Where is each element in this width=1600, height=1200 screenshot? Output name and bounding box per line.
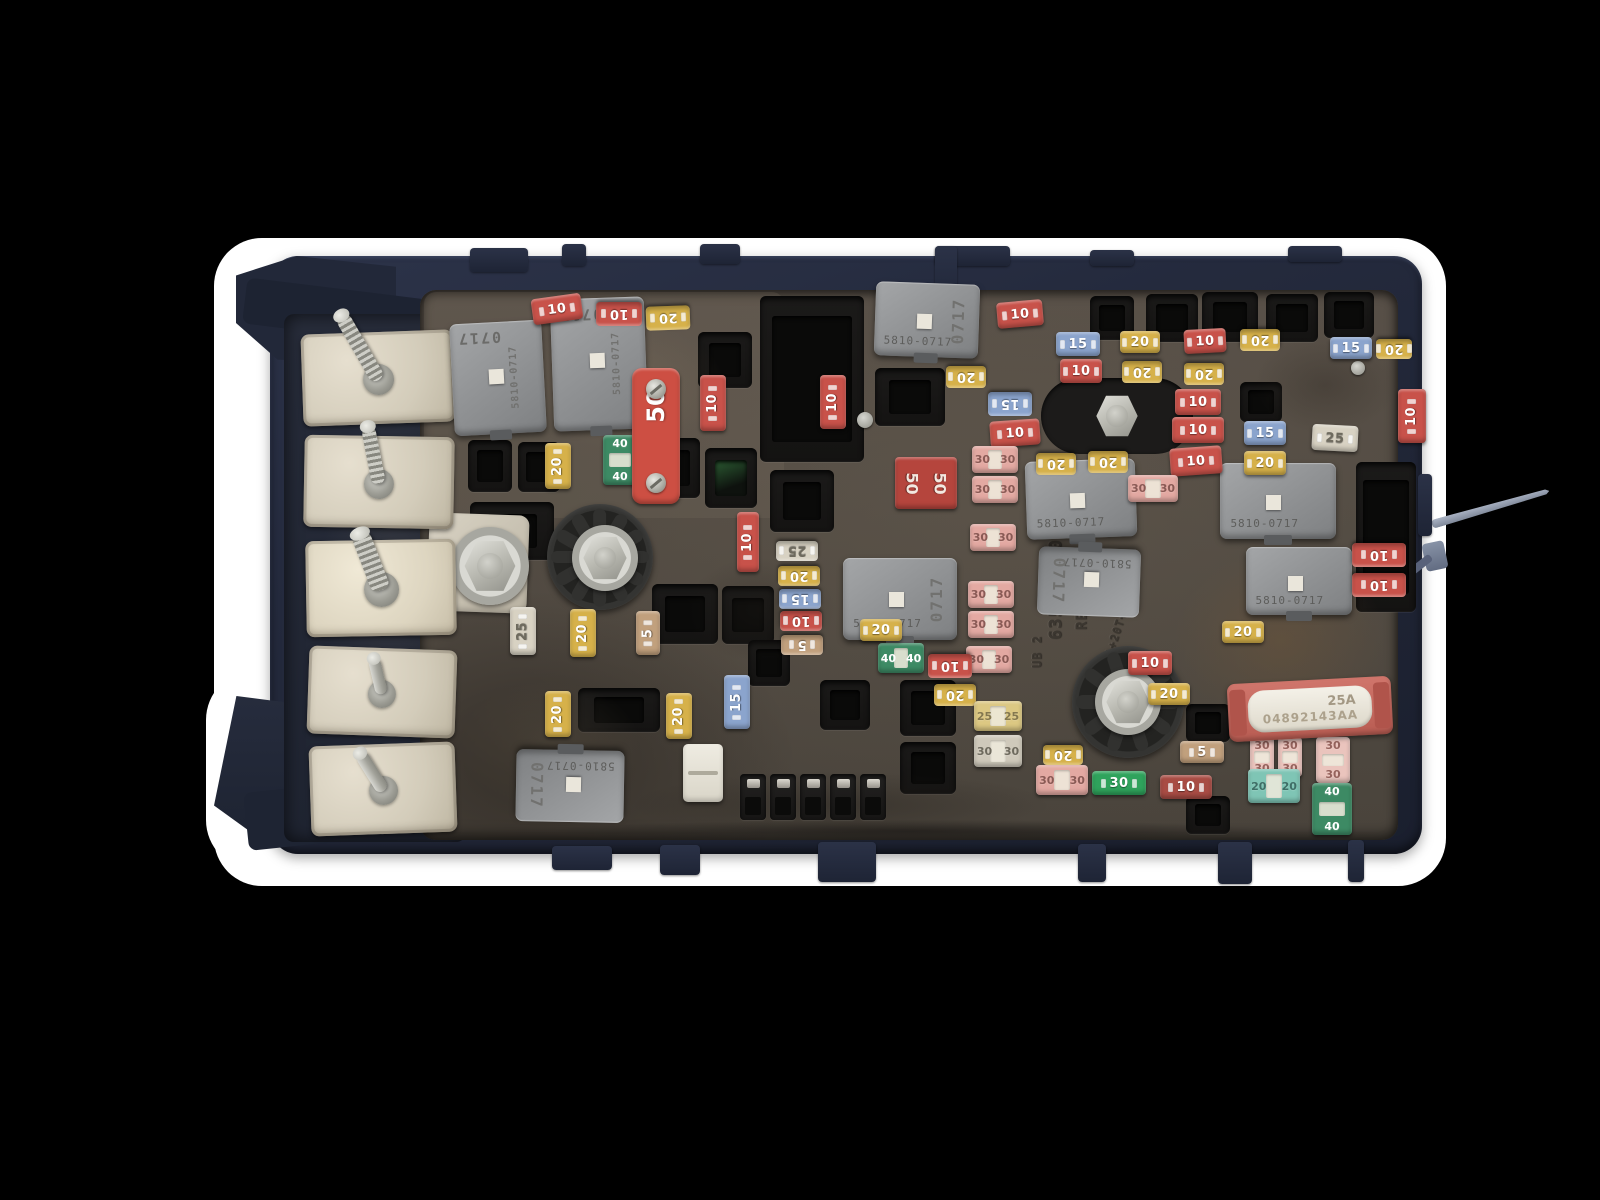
- fuse-amp-label: 30: [975, 453, 990, 466]
- connector-socket: [1324, 292, 1374, 338]
- fuse-amp-label: 10: [1187, 333, 1223, 350]
- wire-connector: [830, 774, 856, 820]
- connector-cavity: [835, 797, 851, 815]
- socket-cavity: [889, 380, 931, 415]
- socket-cavity: [715, 460, 746, 496]
- socket-cavity: [1195, 804, 1221, 827]
- fuse-amp-label: 20: [781, 569, 816, 584]
- fuse-screw: [646, 473, 666, 493]
- connector-socket: [1186, 704, 1230, 742]
- fuse-amp-label: 30: [973, 531, 988, 544]
- socket-cavity: [594, 697, 643, 723]
- fuse-amp-label: 30: [971, 618, 986, 631]
- connector-socket: [722, 586, 774, 644]
- fuse-20a: 20: [778, 566, 820, 586]
- bolt-head-center: [1106, 405, 1127, 426]
- fuse-10a: 10: [1398, 389, 1426, 443]
- terminal-pad: [303, 435, 455, 530]
- fuse-10a: 10: [1128, 651, 1172, 675]
- fuse-amp-label: 25: [1004, 710, 1019, 723]
- relay: 5810-07170717: [1037, 546, 1141, 618]
- fuse-amp-label: 20: [948, 370, 983, 385]
- fuse-20a: 20: [1222, 621, 1264, 643]
- housing-tab: [660, 845, 700, 875]
- fuse-amp-label: 20: [551, 448, 566, 483]
- fuse-20a: 20: [934, 684, 976, 706]
- relay-tab: [1078, 542, 1103, 553]
- housing-tab: [562, 244, 586, 266]
- fuse-amp-label: 30: [1039, 774, 1054, 787]
- fuse-25a: 25: [776, 541, 818, 561]
- wire-connector: [770, 774, 796, 820]
- fuse-20a: 20: [946, 366, 986, 388]
- housing-tab: [1090, 250, 1134, 266]
- relay-side-code: 5810-0717: [610, 332, 623, 396]
- relay-part-number: 5810-0717: [883, 334, 952, 349]
- relay-sticker: [566, 777, 581, 792]
- fuse-50a: 5050: [895, 457, 957, 509]
- fuse-10a: 10: [780, 611, 822, 631]
- fuse-amp-label: 30: [1101, 776, 1136, 791]
- fuse-30a: 3030: [972, 446, 1018, 473]
- relay-tab: [1286, 611, 1311, 621]
- connector-clip: [777, 779, 790, 788]
- relay-sticker: [916, 314, 932, 330]
- connector-socket: [1186, 796, 1230, 834]
- connector-socket: [578, 688, 660, 732]
- molded-code: UB 2: [1030, 635, 1044, 668]
- fuse-amp-label: 10: [601, 307, 636, 322]
- metal-pin: [1351, 361, 1365, 375]
- relay-tab: [558, 744, 584, 754]
- fuse-window: [1266, 774, 1283, 797]
- housing-tab: [552, 846, 612, 870]
- fuse-30a: 3030: [968, 581, 1014, 608]
- fuse-amp-label: 20: [672, 698, 687, 733]
- fuse-amp-label: 10: [1002, 305, 1038, 323]
- fuse-screw: [646, 379, 666, 399]
- wire-connector: [800, 774, 826, 820]
- fuse-20a: 20: [1043, 745, 1083, 765]
- fuse-10a: 10: [737, 512, 759, 572]
- fuse-amp-label: 20: [1282, 780, 1297, 793]
- housing-tab: [1218, 842, 1252, 884]
- housing-tab: [1348, 840, 1364, 882]
- relay: 5810-07170717: [874, 281, 981, 359]
- fuse-window: [609, 453, 631, 467]
- bolt-head-center: [477, 553, 503, 579]
- fuse-30a: 3030: [970, 524, 1016, 551]
- fuse-amp-label: 30: [977, 745, 992, 758]
- fuse-amp-label: 40: [1324, 820, 1339, 833]
- fuse-20a: 20: [1148, 683, 1190, 705]
- fuse-20a: 20: [1376, 339, 1412, 359]
- terminal-stud: [351, 531, 390, 594]
- relay: 5810-07170717: [515, 749, 624, 823]
- fuse-amp-label: 5: [641, 620, 656, 646]
- socket-cavity: [1276, 304, 1307, 333]
- socket-cavity: [1099, 305, 1125, 331]
- fuse-30a: 3030: [1128, 475, 1178, 502]
- fuse-amp-label: 30: [1282, 739, 1297, 752]
- fuse-10a: 10: [596, 302, 642, 326]
- fuse-amp-label: 20: [1186, 367, 1221, 382]
- relay-side-code: 5810-0717: [507, 345, 521, 409]
- fuse-link-code: 04892143AA: [1262, 707, 1358, 726]
- fuse-amp-label: 40: [1324, 785, 1339, 798]
- housing-tab: [1288, 246, 1342, 262]
- fuse-amp-label: 20: [1090, 455, 1125, 470]
- fuse-amp-label: 20: [551, 696, 566, 731]
- fuse-amp-label: 30: [996, 588, 1011, 601]
- fuse-10a: 10: [996, 299, 1044, 329]
- connector-socket: [900, 742, 956, 794]
- socket-cavity: [1156, 304, 1187, 333]
- fuse-30a: 3030: [1316, 737, 1350, 783]
- fuse-amp-label: 30: [998, 531, 1013, 544]
- relay-sticker: [1266, 495, 1281, 510]
- fuse-amp-label: 10: [1178, 452, 1214, 469]
- fuse-amp-label: 30: [1000, 453, 1015, 466]
- fuse-amp-label: 20: [1247, 456, 1282, 471]
- relay-date-code: 0717: [457, 327, 502, 347]
- fuse-amp-label: 20: [1376, 342, 1411, 357]
- fuse-25a: 25: [1311, 424, 1358, 452]
- socket-cavity: [1334, 301, 1364, 329]
- relay-side-code: 0717: [1049, 557, 1070, 604]
- fuse-amp-label: 10: [1180, 423, 1215, 438]
- housing-tab: [818, 842, 876, 882]
- relay-sticker: [488, 369, 504, 385]
- fuse-20a: 20: [646, 305, 691, 331]
- fuse-amp-label: 15: [1247, 426, 1282, 441]
- fuse-5a: 5: [1180, 741, 1224, 763]
- fuse-15a: 15: [988, 392, 1032, 416]
- fuse-20a: 20: [545, 443, 571, 489]
- socket-cavity: [1195, 712, 1221, 735]
- connector-socket: [770, 470, 834, 532]
- connector-socket: [820, 680, 870, 730]
- connector-socket: [875, 368, 945, 426]
- fuse-amp-label: 30: [1325, 739, 1340, 752]
- fuse-20a: 2020: [1248, 769, 1300, 803]
- fuse-amp-label: 15: [782, 592, 817, 607]
- housing-tab: [700, 244, 740, 264]
- wire-connector: [860, 774, 886, 820]
- fuse-amp-label: 10: [1361, 578, 1396, 593]
- terminal-pad: [305, 539, 457, 638]
- fuse-20a: 20: [545, 691, 571, 737]
- fuse-amp-label: 25: [779, 544, 814, 559]
- fuse-20a: 20: [666, 693, 692, 739]
- fuse-30a: 30: [1092, 771, 1146, 795]
- fuse-40a: 4040: [1312, 783, 1352, 835]
- fuse-amp-label: 30: [1160, 482, 1175, 495]
- fuse-15a: 15: [1056, 332, 1100, 356]
- relay-sticker: [1084, 572, 1100, 588]
- fuse-amp-label: 25: [977, 710, 992, 723]
- fuse-amp-label: 20: [1251, 780, 1266, 793]
- fuse-amp-label: 15: [992, 397, 1027, 412]
- connector-clip: [747, 779, 760, 788]
- fuse-amp-label: 30: [1131, 482, 1146, 495]
- socket-cavity: [830, 690, 860, 720]
- relay-sticker: [589, 353, 605, 369]
- fuse-15a: 15: [779, 589, 821, 609]
- fuse-amp-label: 10: [1405, 398, 1420, 433]
- connector-socket: [705, 448, 757, 508]
- fuse-10a: 10: [1172, 417, 1224, 443]
- fuse-window: [1254, 751, 1269, 762]
- fuse-20a: 20: [1120, 331, 1160, 353]
- fuse-amp-label: 25: [1317, 430, 1353, 447]
- fuse-amp-label: 30: [975, 483, 990, 496]
- fuse-amp-label: 30: [1325, 768, 1340, 781]
- relay-part-number: 5810-0717: [1230, 517, 1299, 530]
- fuse-amp-label: 20: [1225, 625, 1260, 640]
- connector-socket: [1240, 382, 1282, 422]
- fuse-amp-label: 10: [783, 614, 818, 629]
- fuse-10a: 10: [1175, 389, 1221, 415]
- fuse-amp-label: 20: [650, 310, 686, 326]
- fuse-amp-label: 15: [1060, 337, 1095, 352]
- fuse-amp-label: 10: [1361, 548, 1396, 563]
- relay: 5810-0717: [1246, 547, 1352, 615]
- fuse-10a: 10: [1169, 445, 1223, 477]
- socket-cavity: [756, 649, 781, 677]
- connector-cavity: [865, 797, 881, 815]
- fuse-amp-label: 10: [1063, 364, 1098, 379]
- connector-cavity: [805, 797, 821, 815]
- fuse-amp-label: 50: [902, 472, 921, 494]
- fuse-40a: 4040: [878, 643, 924, 673]
- terminal-pad: [308, 741, 457, 836]
- connector-clip: [867, 779, 880, 788]
- connector-cavity: [745, 797, 761, 815]
- fuse-amp-label: 10: [997, 424, 1033, 441]
- fuse-window: [1319, 802, 1345, 817]
- fuse-10a: 10: [1160, 775, 1212, 799]
- fuse-window: [1145, 479, 1161, 497]
- fuse-amp-label: 5: [1189, 745, 1215, 760]
- housing-tab: [1418, 474, 1432, 536]
- fuse-30a: 3030: [968, 611, 1014, 638]
- fuse-30a: 3030: [972, 476, 1018, 503]
- fuse-box-product-photo: 6356-5110 REV 001 UB 2 >PA+20T+10GF< 071…: [0, 0, 1600, 1200]
- relay: 07175810-0717: [449, 320, 547, 437]
- fuse-30a: 3030: [1036, 765, 1088, 795]
- connector-socket: [468, 440, 512, 492]
- fuse-amp-label: 10: [539, 299, 576, 319]
- fuse-amp-label: 20: [576, 615, 591, 650]
- fuse-30a: 3030: [966, 646, 1012, 673]
- socket-cavity: [1248, 390, 1273, 414]
- bolt-head-center: [1117, 691, 1139, 713]
- fuse-10a: 10: [1183, 328, 1226, 354]
- fuse-amp-label: 5: [789, 638, 815, 653]
- fuse-amp-label: 40: [612, 470, 627, 483]
- relay-side-code: 0717: [947, 297, 968, 344]
- connector-clip: [807, 779, 820, 788]
- fuse-amp-label: 10: [741, 524, 756, 559]
- connector-cavity: [775, 797, 791, 815]
- wire-connector: [740, 774, 766, 820]
- fuse-amp-label: 15: [730, 684, 745, 719]
- relay-sticker: [889, 592, 904, 607]
- fuse-amp-label: 10: [826, 384, 841, 419]
- fuse-15a: 15: [724, 675, 750, 729]
- fuse-amp-label: 40: [881, 652, 896, 665]
- fuse-25a: 25: [510, 607, 536, 655]
- fuse-amp-label: 25: [516, 613, 531, 648]
- fuse-amp-label: 30: [994, 653, 1009, 666]
- fuse-amp-label: 10: [1180, 395, 1215, 410]
- fuse-amp-label: 10: [932, 659, 967, 674]
- fuse-15a: 15: [1244, 421, 1286, 445]
- fuse-amp-label: 30: [971, 588, 986, 601]
- fuse-20a: 20: [1088, 451, 1128, 473]
- socket-cavity: [911, 752, 945, 783]
- fuse-20a: 20: [860, 619, 902, 641]
- relay-part-number: 5810-0717: [1256, 594, 1325, 607]
- relay-side-code: 0717: [527, 762, 547, 809]
- socket-cavity: [783, 482, 821, 519]
- fuse-10a: 10: [700, 375, 726, 431]
- fuse-15a: 15: [1330, 337, 1372, 359]
- fuse-window: [1054, 770, 1071, 790]
- terminal-pad: [307, 645, 458, 738]
- fuse-20a: 20: [1244, 451, 1286, 475]
- fuse-link-body: 25A04892143AA: [1247, 685, 1373, 733]
- zip-tie-strap: [1431, 487, 1551, 529]
- connector-socket: [652, 584, 718, 644]
- fuse-5a: 5: [636, 611, 660, 655]
- fuse-10a: 10: [1060, 359, 1102, 383]
- fuse-25a: 2525: [974, 701, 1022, 731]
- housing-tab: [470, 248, 528, 272]
- fuse-link-amps: 25A: [1327, 692, 1356, 708]
- fuse-20a: 20: [1184, 363, 1224, 385]
- relay-tab: [490, 429, 513, 440]
- fuse-amp-label: 40: [906, 652, 921, 665]
- relay-part-number: 5810-0717: [546, 758, 615, 772]
- relay-tab: [913, 353, 938, 364]
- fuse-amp-label: 15: [1333, 341, 1368, 356]
- socket-cavity: [709, 343, 741, 377]
- relay-sticker: [1070, 493, 1086, 509]
- fuse-link-25a: 25A04892143AA: [1227, 676, 1394, 743]
- fuse-20a: 20: [570, 609, 596, 657]
- relay-sticker: [1288, 576, 1303, 591]
- fuse-10a: 10: [928, 654, 972, 678]
- fuse-amp-label: 50: [931, 472, 950, 494]
- fuse-amp-label: 20: [937, 688, 972, 703]
- fuse-amp-label: 20: [863, 623, 898, 638]
- fuse-30a: 3030: [974, 735, 1022, 767]
- bolt-head-center: [594, 547, 616, 569]
- socket-cavity: [732, 598, 763, 633]
- fuse-10a: 10: [820, 375, 846, 429]
- fuse-amp-label: 20: [1122, 335, 1157, 350]
- fuse-amp-label: 10: [1132, 656, 1167, 671]
- fuse-amp-label: 30: [996, 618, 1011, 631]
- fuse-window: [1322, 754, 1344, 767]
- terminal-pad: [300, 329, 455, 426]
- relay-part-number: 5810-0717: [1063, 555, 1132, 570]
- fuse-amp-label: 20: [1038, 457, 1073, 472]
- fuse-amp-label: 10: [1168, 780, 1203, 795]
- fuse-amp-label: 30: [1070, 774, 1085, 787]
- fuse-10a: 10: [1352, 573, 1406, 597]
- housing-tab: [1078, 844, 1106, 882]
- socket-cavity: [665, 596, 705, 632]
- fuse-amp-label: 20: [1124, 365, 1159, 380]
- white-connector: [683, 744, 723, 802]
- fuse-amp-label: 20: [1045, 748, 1080, 763]
- fuse-20a: 20: [1240, 329, 1280, 351]
- connector-socket: [760, 296, 864, 462]
- fuse-20a: 20: [1036, 453, 1076, 475]
- fuse-10a: 10: [989, 418, 1041, 447]
- fuse-50a: 50: [632, 368, 680, 504]
- connector-clip: [837, 779, 850, 788]
- relay-side-code: 0717: [927, 576, 946, 623]
- fuse-amp-label: 40: [612, 437, 627, 450]
- fuse-window: [1282, 751, 1297, 762]
- fuse-amp-label: 30: [1000, 483, 1015, 496]
- fuse-amp-label: 30: [1004, 745, 1019, 758]
- metal-pin: [857, 412, 873, 428]
- fuse-amp-label: 20: [1242, 333, 1277, 348]
- socket-cavity: [477, 450, 503, 481]
- fuse-amp-label: 10: [706, 385, 721, 420]
- relay-part-number: 5810-0717: [1036, 515, 1105, 530]
- fuse-amp-label: 20: [1151, 687, 1186, 702]
- relay-tab: [1264, 535, 1292, 545]
- fuse-5a: 5: [781, 635, 823, 655]
- fuse-20a: 20: [1122, 361, 1162, 383]
- fuse-10a: 10: [1352, 543, 1406, 567]
